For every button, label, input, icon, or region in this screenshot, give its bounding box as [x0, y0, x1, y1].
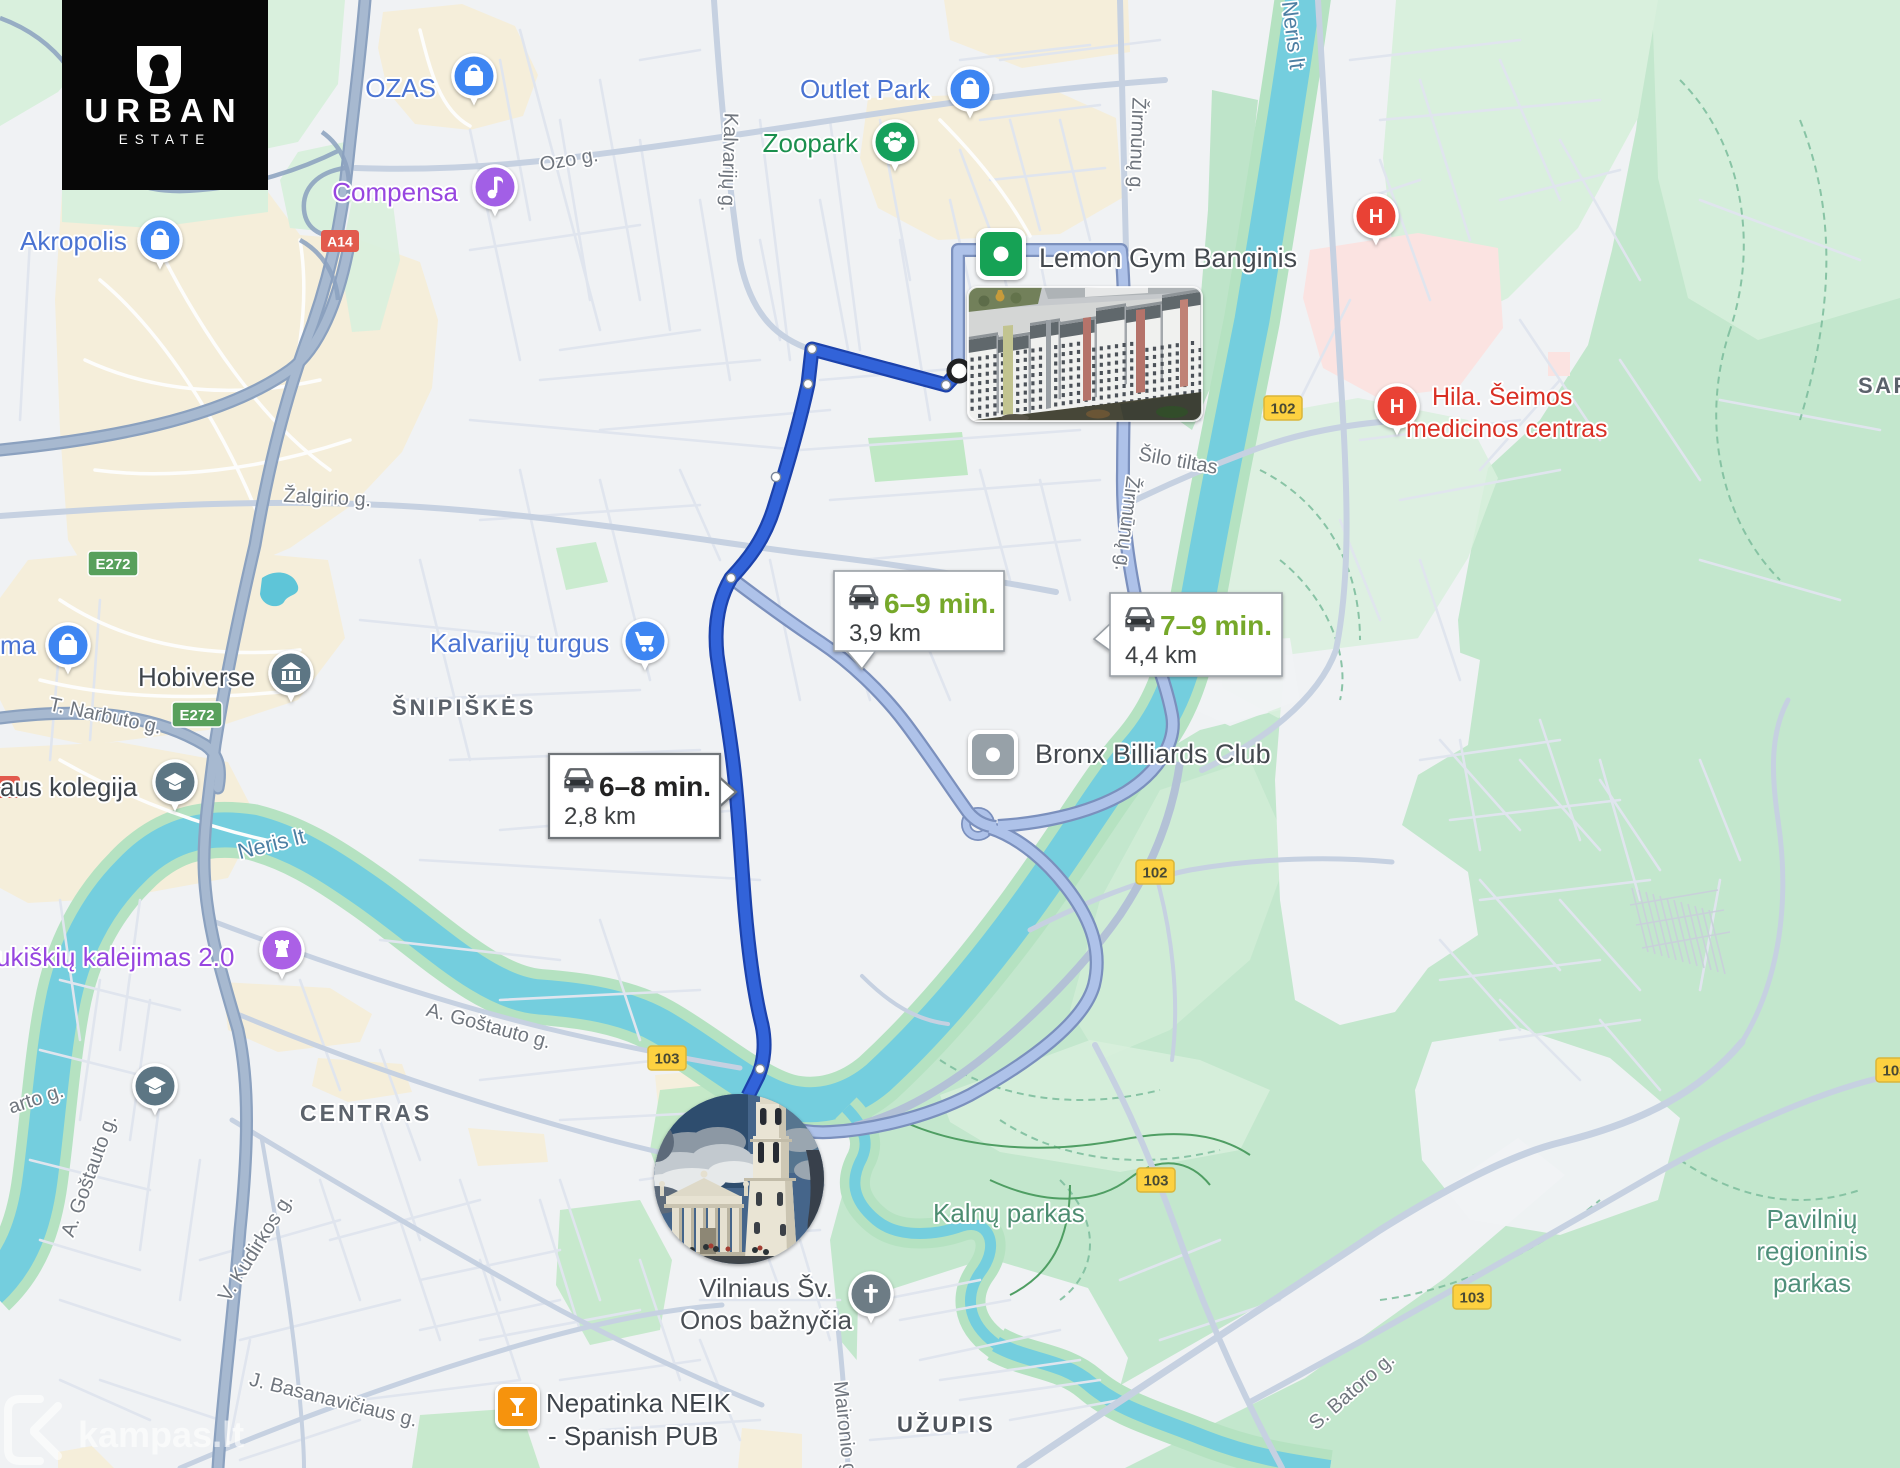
- svg-text:H: H: [1390, 396, 1404, 418]
- svg-text:Hila. Šeimos: Hila. Šeimos: [1432, 382, 1572, 411]
- svg-text:Žalgirio g.: Žalgirio g.: [283, 484, 372, 512]
- svg-text:Nepatinka NEIK: Nepatinka NEIK: [546, 1388, 732, 1418]
- svg-text:SAP: SAP: [1858, 373, 1900, 398]
- svg-text:Žirmūnų g.: Žirmūnų g.: [1124, 97, 1150, 193]
- svg-text:OZAS: OZAS: [365, 73, 436, 103]
- svg-text:Kalnų parkas: Kalnų parkas: [933, 1198, 1085, 1228]
- svg-text:ŠNIPIŠKĖS: ŠNIPIŠKĖS: [392, 695, 536, 720]
- svg-text:Onos bažnyčia: Onos bažnyčia: [680, 1305, 853, 1335]
- svg-text:4,4 km: 4,4 km: [1125, 642, 1197, 669]
- svg-text:Pavilnių: Pavilnių: [1766, 1204, 1857, 1234]
- svg-text:aus kolegija: aus kolegija: [0, 772, 138, 802]
- svg-text:Vilniaus Šv.: Vilniaus Šv.: [699, 1273, 832, 1303]
- svg-text:Kalvarijų turgus: Kalvarijų turgus: [430, 628, 609, 658]
- svg-text:UŽUPIS: UŽUPIS: [897, 1412, 996, 1437]
- svg-text:ma: ma: [0, 630, 37, 660]
- svg-text:102: 102: [1270, 401, 1295, 418]
- svg-text:regioninis: regioninis: [1756, 1236, 1867, 1266]
- svg-text:3,9 km: 3,9 km: [849, 620, 921, 647]
- svg-text:H: H: [1369, 206, 1383, 228]
- svg-text:6–8 min.: 6–8 min.: [599, 771, 711, 802]
- svg-text:103: 103: [654, 1051, 679, 1068]
- svg-text:103: 103: [1882, 1063, 1900, 1080]
- svg-text:E272: E272: [179, 707, 214, 724]
- svg-text:Hobiverse: Hobiverse: [138, 662, 255, 692]
- svg-text:103: 103: [1459, 1290, 1484, 1307]
- svg-text:medicinos centras: medicinos centras: [1406, 415, 1607, 443]
- svg-text:7–9 min.: 7–9 min.: [1160, 610, 1272, 641]
- svg-text:ESTATE: ESTATE: [119, 132, 212, 147]
- svg-text:- Spanish PUB: - Spanish PUB: [548, 1421, 719, 1451]
- svg-text:A14: A14: [327, 234, 353, 250]
- svg-text:Compensa: Compensa: [332, 177, 458, 207]
- svg-text:kampas.lt: kampas.lt: [78, 1414, 244, 1455]
- svg-text:Zoopark: Zoopark: [763, 128, 859, 158]
- svg-text:2,8 km: 2,8 km: [564, 803, 636, 830]
- svg-text:parkas: parkas: [1773, 1268, 1851, 1298]
- svg-text:103: 103: [1143, 1173, 1168, 1190]
- svg-text:Bronx Billiards Club: Bronx Billiards Club: [1035, 739, 1271, 769]
- svg-text:URBAN: URBAN: [84, 92, 243, 129]
- svg-text:Kalvarijų g.: Kalvarijų g.: [716, 112, 741, 212]
- svg-text:6–9 min.: 6–9 min.: [884, 588, 996, 619]
- svg-text:102: 102: [1142, 865, 1167, 882]
- svg-text:E272: E272: [95, 556, 130, 573]
- svg-text:Lemon Gym Banginis: Lemon Gym Banginis: [1039, 243, 1297, 273]
- svg-text:ukiškių kalėjimas 2.0: ukiškių kalėjimas 2.0: [0, 942, 234, 972]
- svg-text:CENTRAS: CENTRAS: [300, 1100, 432, 1126]
- svg-text:Outlet Park: Outlet Park: [800, 74, 931, 104]
- svg-text:Akropolis: Akropolis: [20, 226, 127, 256]
